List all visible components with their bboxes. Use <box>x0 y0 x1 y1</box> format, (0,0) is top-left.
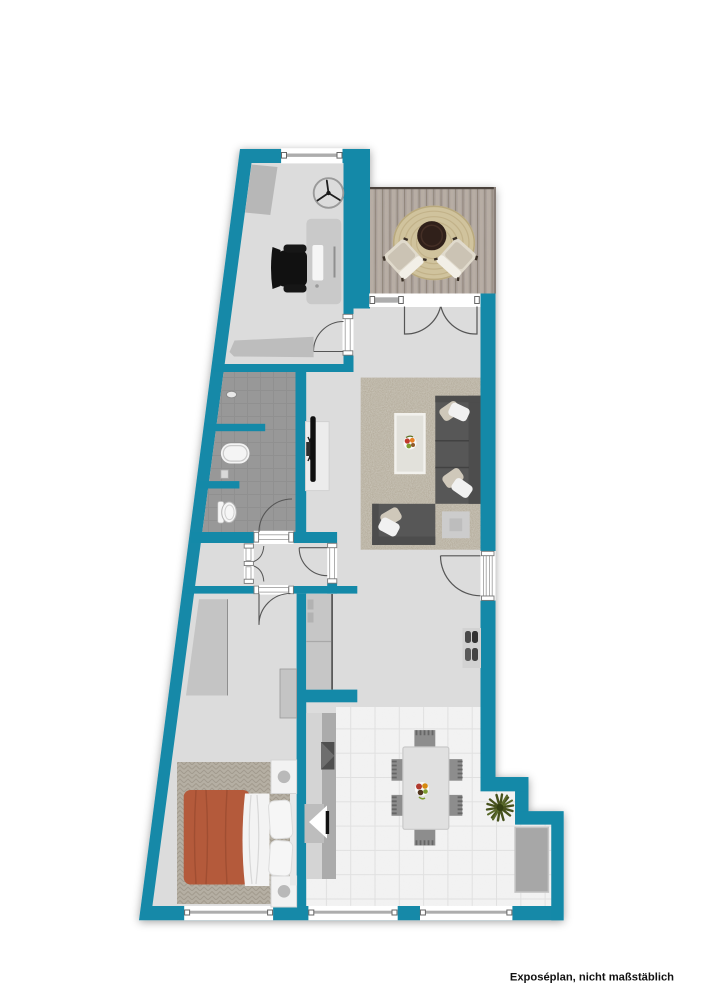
svg-text:Exposéplan, nicht maßstäblich: Exposéplan, nicht maßstäblich <box>510 972 674 984</box>
